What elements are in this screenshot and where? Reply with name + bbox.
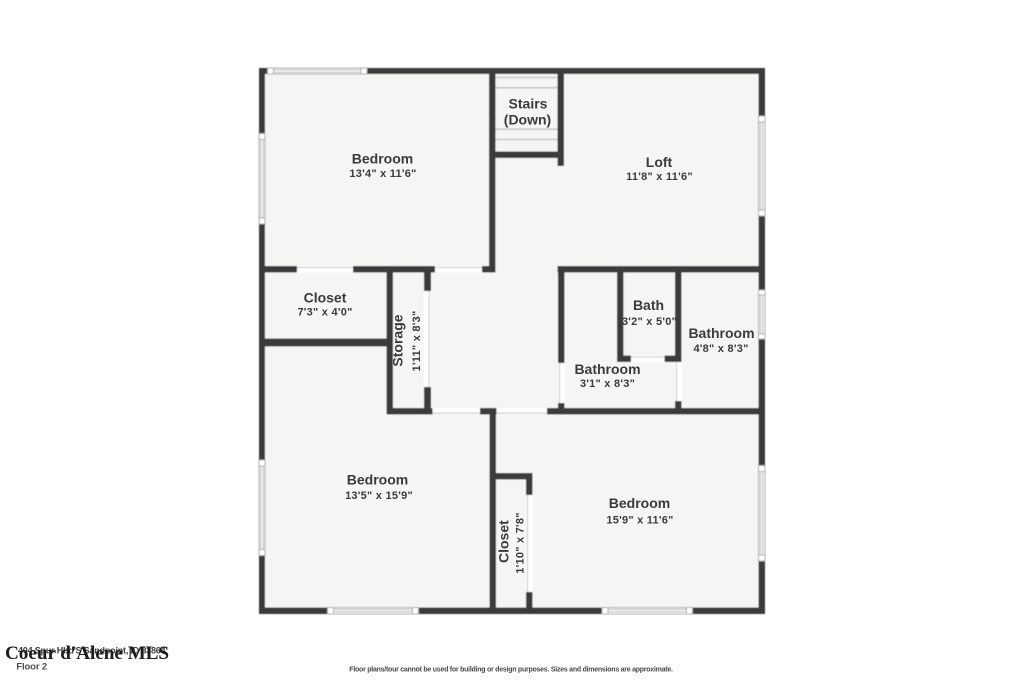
svg-text:Loft: Loft: [646, 154, 673, 170]
svg-text:(Down): (Down): [504, 112, 551, 128]
svg-text:Floor plans/tour cannot be use: Floor plans/tour cannot be used for buil…: [349, 667, 673, 674]
svg-text:Bathroom: Bathroom: [574, 361, 640, 377]
svg-text:3'2" x 5'0": 3'2" x 5'0": [622, 316, 677, 328]
svg-text:Bath: Bath: [633, 297, 664, 313]
svg-text:13'4" x 11'6": 13'4" x 11'6": [349, 168, 416, 180]
svg-text:Bedroom: Bedroom: [352, 151, 413, 167]
svg-text:Bathroom: Bathroom: [688, 325, 754, 341]
svg-text:11'8" x 11'6": 11'8" x 11'6": [626, 171, 693, 183]
svg-text:Bedroom: Bedroom: [609, 495, 670, 511]
svg-text:Bedroom: Bedroom: [347, 472, 408, 488]
svg-text:13'5" x 15'9": 13'5" x 15'9": [345, 490, 413, 502]
svg-text:1'10" x 7'8": 1'10" x 7'8": [515, 512, 527, 573]
svg-text:Closet: Closet: [496, 520, 512, 563]
svg-text:15'9" x 11'6": 15'9" x 11'6": [606, 514, 673, 526]
svg-text:Stairs: Stairs: [509, 95, 548, 111]
svg-text:4'8" x 8'3": 4'8" x 8'3": [693, 343, 748, 355]
svg-text:1'11" x 8'3": 1'11" x 8'3": [411, 311, 423, 372]
svg-text:Closet: Closet: [304, 290, 347, 306]
svg-text:Floor 2: Floor 2: [16, 661, 47, 672]
svg-text:7'3" x 4'0": 7'3" x 4'0": [297, 306, 352, 318]
svg-text:3'1" x 8'3": 3'1" x 8'3": [580, 378, 635, 390]
svg-text:Storage: Storage: [390, 314, 406, 366]
